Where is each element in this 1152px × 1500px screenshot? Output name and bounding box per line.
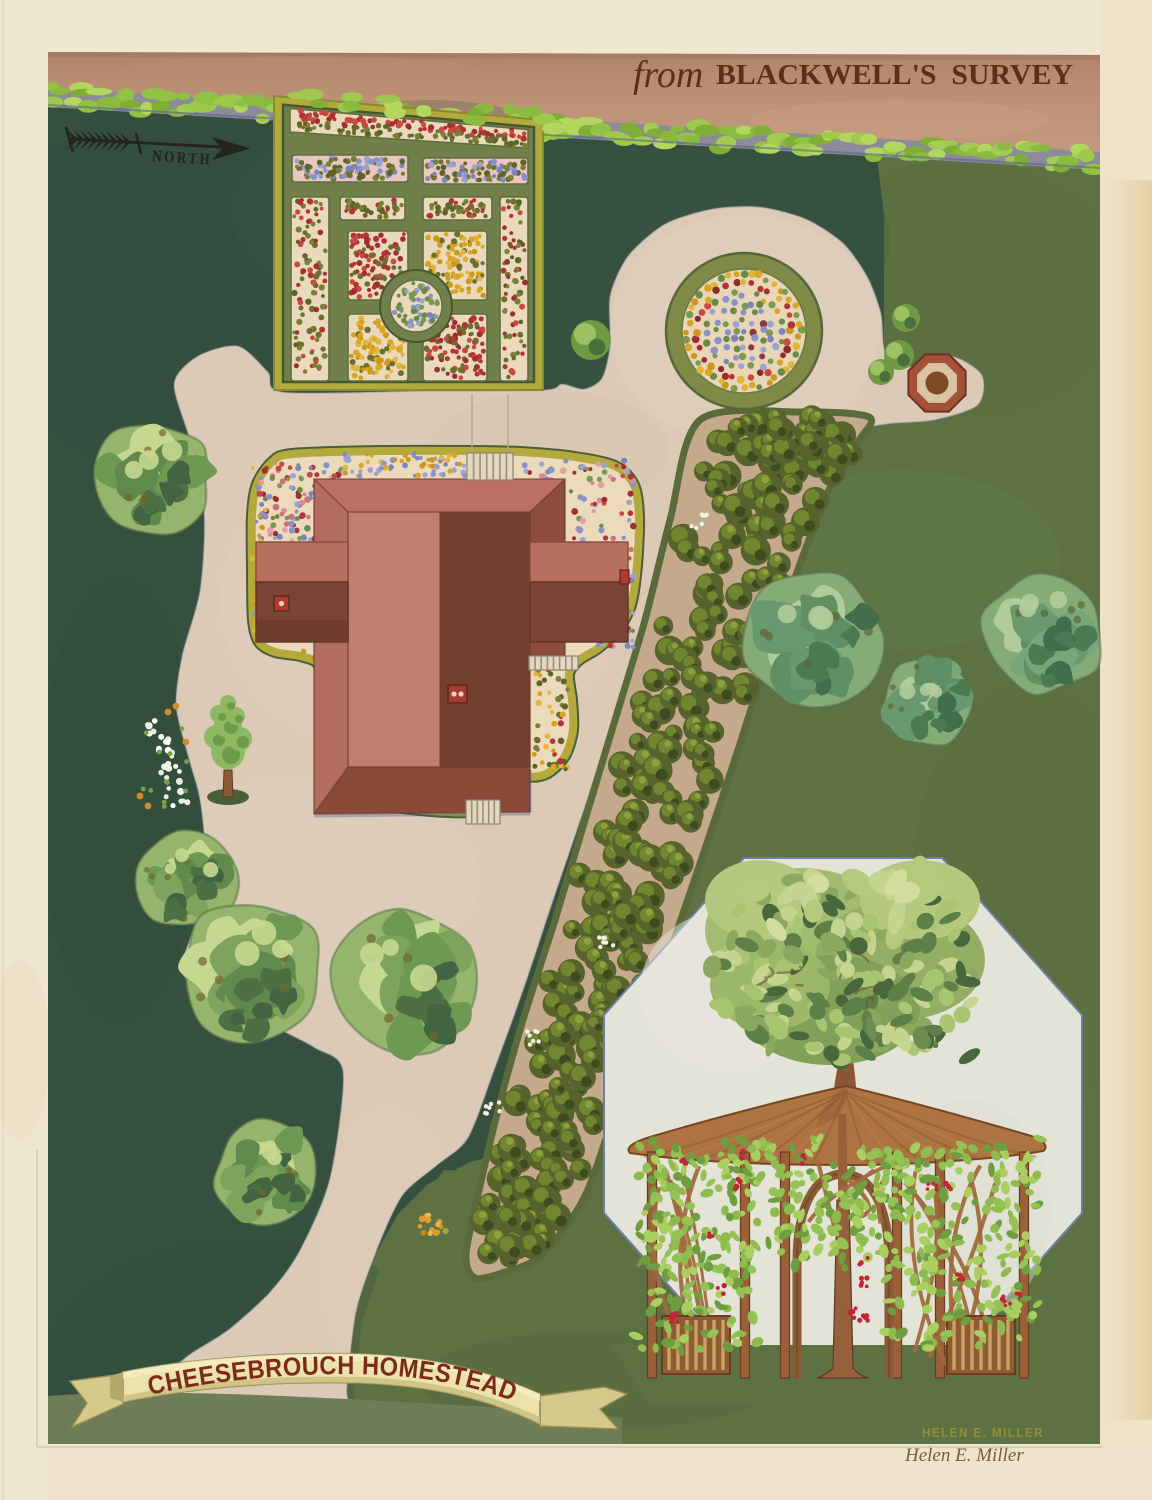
svg-text:Helen E. Miller: Helen E. Miller [904,1445,1024,1466]
svg-text:from: from [633,54,703,96]
svg-text:BLACKWELL'S SURVEY: BLACKWELL'S SURVEY [716,59,1073,91]
svg-text:HELEN E. MILLER: HELEN E. MILLER [922,1425,1044,1440]
